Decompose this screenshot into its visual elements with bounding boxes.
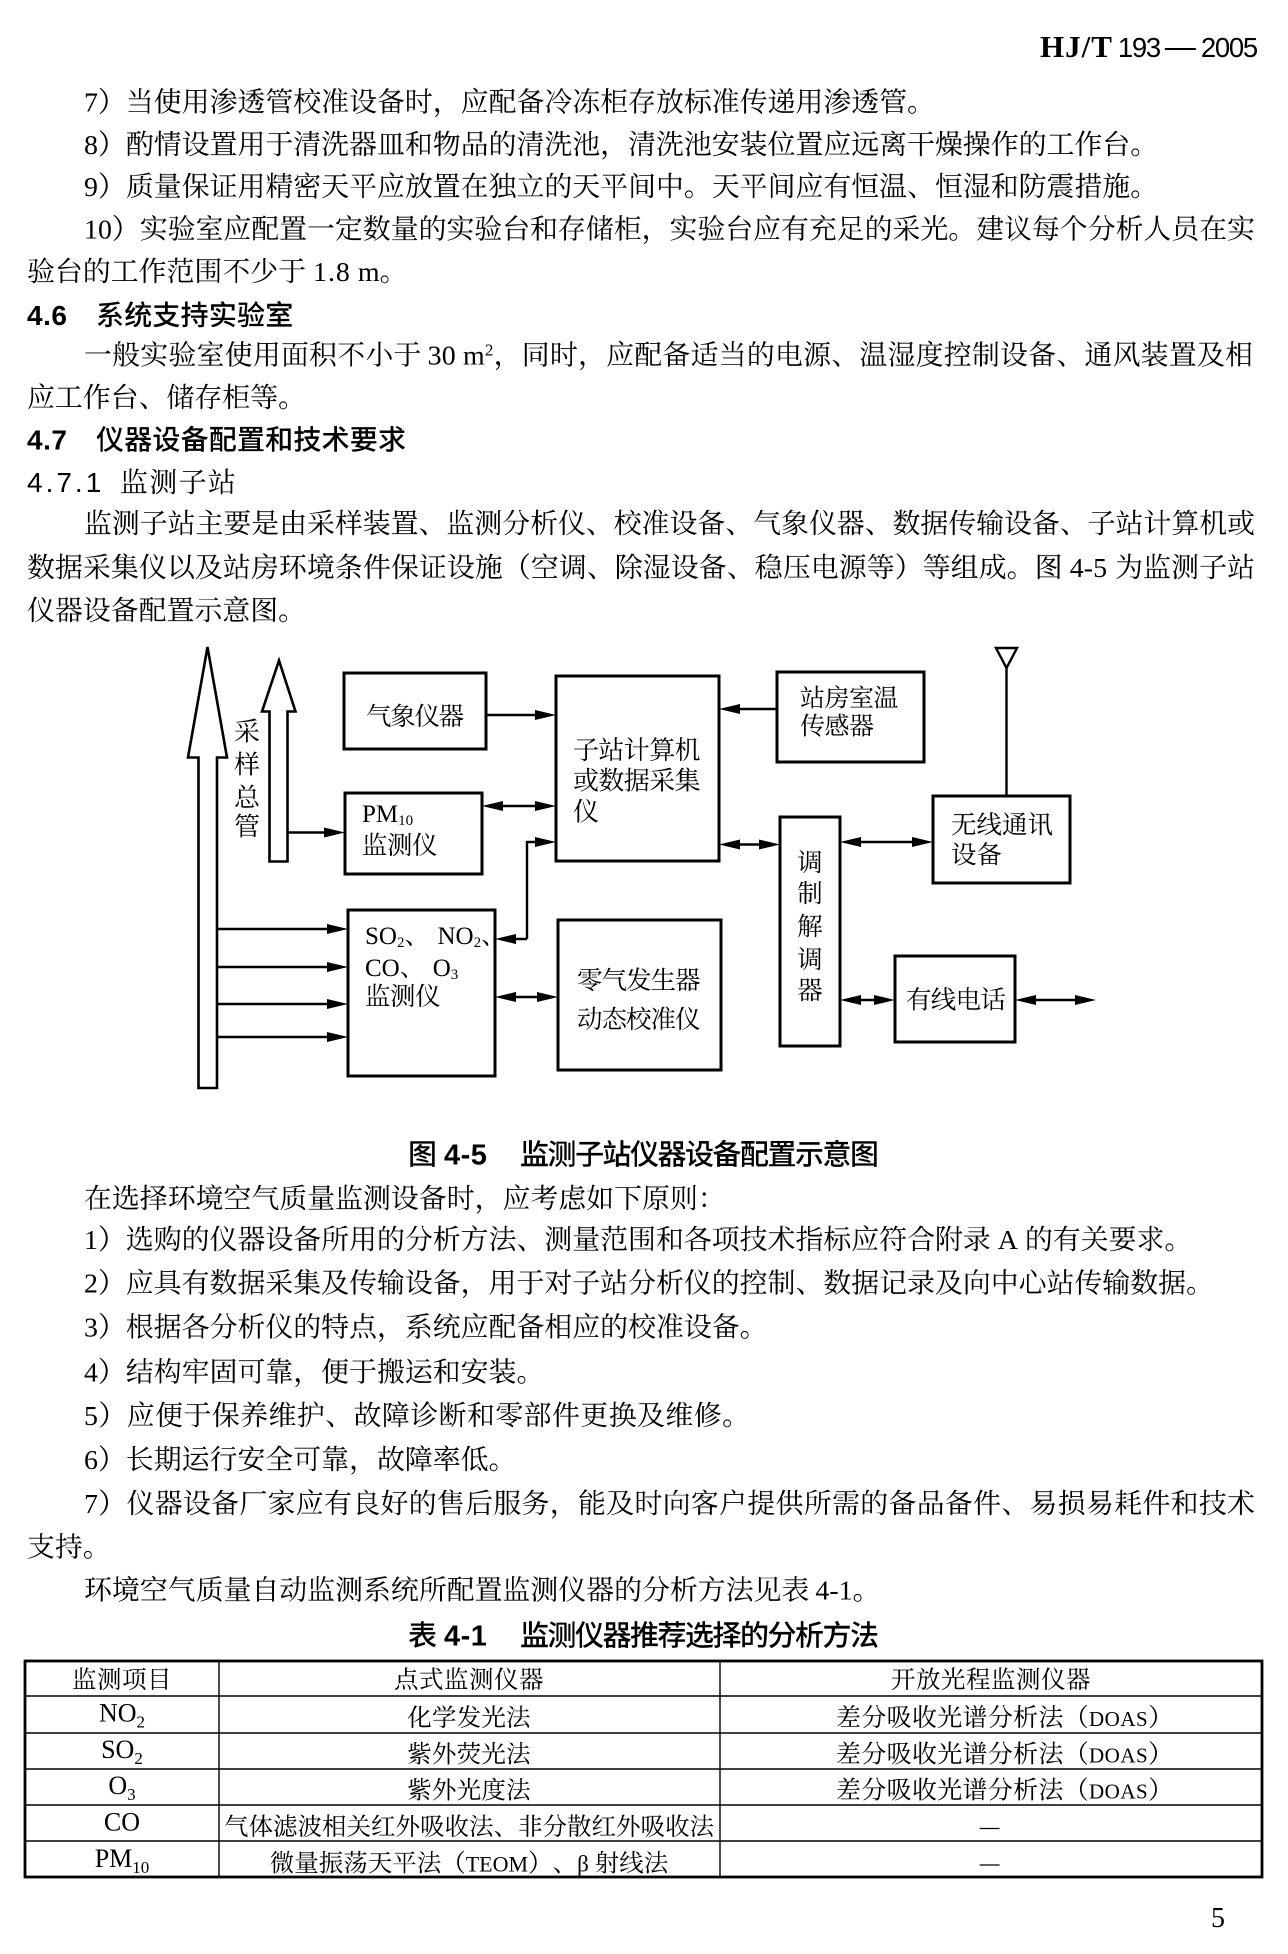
svg-text:4.7: 4.7 [27, 425, 67, 456]
svg-text:NO: NO [438, 923, 474, 950]
svg-text:2: 2 [84, 1269, 98, 1300]
svg-text:4-5: 4-5 [1070, 553, 1107, 584]
svg-text:O: O [433, 955, 451, 982]
svg-text:DOAS: DOAS [1089, 1707, 1148, 1731]
svg-text:4-1: 4-1 [444, 1621, 487, 1653]
svg-text:10: 10 [398, 813, 413, 829]
svg-text:O: O [108, 1771, 127, 1800]
svg-text:—: — [1165, 29, 1196, 64]
svg-text:m: m [463, 341, 485, 372]
svg-text:2: 2 [134, 1749, 143, 1768]
svg-text:2: 2 [137, 1713, 146, 1732]
svg-text:NO: NO [99, 1699, 137, 1728]
svg-text:193: 193 [1118, 32, 1161, 63]
svg-text:2: 2 [397, 935, 405, 951]
svg-text:4-5: 4-5 [444, 1140, 487, 1172]
svg-text:PM: PM [362, 801, 398, 828]
svg-text:SO: SO [365, 923, 397, 950]
svg-text:3: 3 [84, 1313, 98, 1344]
svg-text:5: 5 [84, 1401, 98, 1432]
svg-text:CO: CO [104, 1808, 140, 1837]
svg-text:PM: PM [95, 1844, 133, 1873]
svg-text:1.8: 1.8 [313, 257, 351, 288]
svg-text:10: 10 [84, 215, 112, 246]
svg-text:4.7.1: 4.7.1 [27, 467, 104, 498]
svg-text:4: 4 [84, 1358, 98, 1389]
svg-text:CO: CO [365, 955, 400, 982]
svg-text:6: 6 [84, 1445, 98, 1476]
svg-text:3: 3 [127, 1785, 136, 1804]
svg-text:30: 30 [428, 341, 456, 372]
svg-text:DOAS: DOAS [1089, 1780, 1148, 1804]
svg-text:3: 3 [451, 967, 459, 983]
svg-text:10: 10 [132, 1858, 149, 1877]
svg-text:HJ/T: HJ/T [1040, 29, 1113, 64]
svg-text:7: 7 [84, 1489, 98, 1520]
svg-text:DOAS: DOAS [1089, 1744, 1148, 1768]
svg-text:1: 1 [84, 1225, 98, 1256]
svg-text:A: A [998, 1225, 1018, 1256]
svg-text:TEOM: TEOM [466, 1852, 528, 1877]
svg-text:2005: 2005 [1201, 32, 1258, 63]
svg-text:7: 7 [84, 88, 98, 119]
svg-text:m: m [358, 257, 380, 288]
svg-text:β: β [577, 1852, 589, 1877]
svg-text:SO: SO [101, 1735, 134, 1764]
svg-text:9: 9 [84, 172, 98, 203]
svg-text:2: 2 [485, 341, 494, 360]
svg-text:4.6: 4.6 [27, 300, 67, 331]
svg-text:4-1: 4-1 [815, 1576, 852, 1607]
svg-text:5: 5 [1211, 1903, 1225, 1934]
svg-text:8: 8 [84, 130, 98, 161]
svg-text:2: 2 [474, 935, 482, 951]
